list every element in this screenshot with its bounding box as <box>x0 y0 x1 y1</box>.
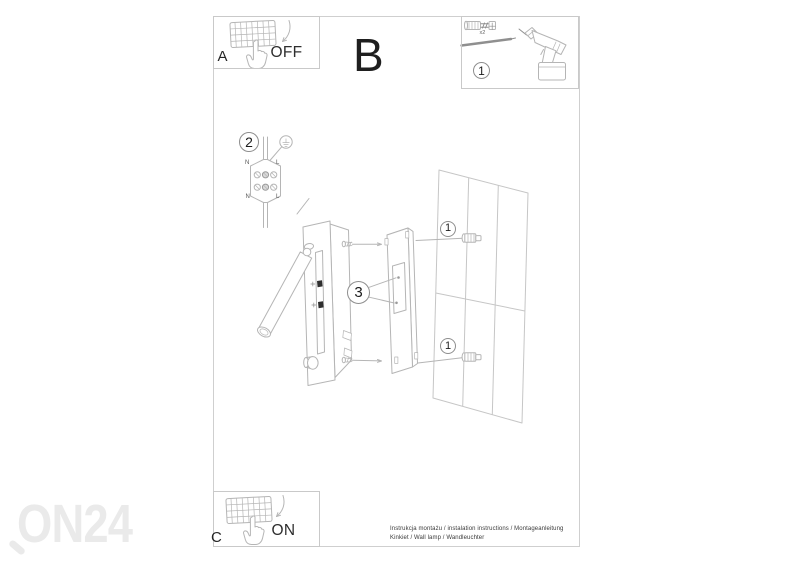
watermark-logo: ON24 <box>17 497 132 551</box>
terminal-label-l-top: L <box>276 160 279 166</box>
screw-quantity-label: x2 <box>480 31 486 37</box>
sheet-outline <box>213 16 580 547</box>
footer-text: Instrukcja montażu / instalation instruc… <box>390 525 564 543</box>
step-c-box <box>213 491 320 547</box>
terminal-label-n-bottom: N <box>246 194 250 200</box>
tools-step-badge: 1 <box>473 62 490 79</box>
step-c-label: C <box>211 530 222 545</box>
instruction-sheet-page: A OFF B x2 1 2 N L N L 3 1 1 C ON Instru… <box>0 0 792 566</box>
step-a-label: A <box>218 49 228 64</box>
step-a-box <box>213 16 320 69</box>
terminal-label-l-bottom: L <box>276 194 279 200</box>
fixing-screws-badge: 3 <box>347 281 370 304</box>
wall-plug-badge-top: 1 <box>440 221 456 237</box>
wiring-step-badge: 2 <box>239 132 259 152</box>
wall-plug-badge-bottom: 1 <box>440 338 456 354</box>
footer-line-2: Kinkiet / Wall lamp / Wandleuchter <box>390 534 564 543</box>
terminal-label-n-top: N <box>245 160 249 166</box>
step-b-label: B <box>353 32 384 78</box>
switch-off-label: OFF <box>271 45 303 61</box>
switch-on-label: ON <box>272 523 296 539</box>
footer-line-1: Instrukcja montażu / instalation instruc… <box>390 525 564 534</box>
